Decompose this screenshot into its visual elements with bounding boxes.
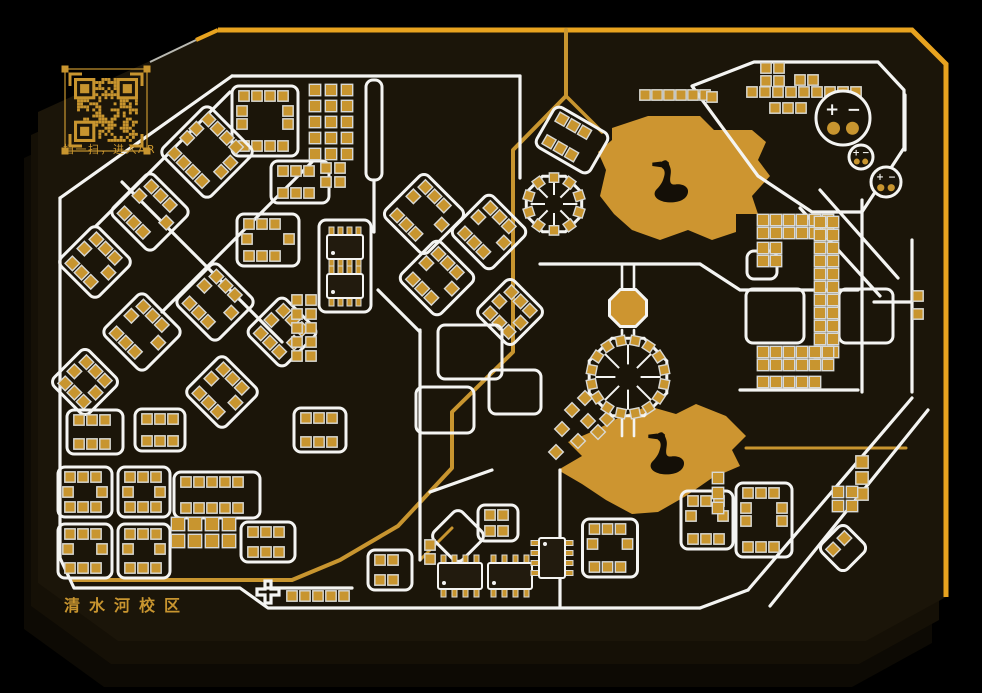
pad-array <box>712 472 725 515</box>
ic-body <box>488 563 532 589</box>
plaza-pad <box>629 334 642 347</box>
battery-pad <box>862 159 868 165</box>
battery-minus-mark: − <box>888 172 896 183</box>
battery-minus-mark: − <box>847 99 861 119</box>
battery-pad <box>846 122 859 135</box>
plaza-pad <box>614 334 627 347</box>
battery-plus-mark: + <box>852 149 860 159</box>
pcb-board <box>38 30 946 641</box>
plaza-pad <box>585 378 598 391</box>
octagon-pad <box>610 290 647 327</box>
battery-footprint: +− <box>871 167 901 197</box>
pin1-dot <box>442 581 446 585</box>
pin1-dot <box>543 542 547 546</box>
ic-body <box>327 274 363 298</box>
battery-outline <box>816 91 870 145</box>
pcb-campus-map-photo: +−+−+− 扫一扫，进入AR 清水河校区 <box>0 0 982 693</box>
battery-pad <box>888 184 895 191</box>
ic-body <box>438 563 482 589</box>
qr-frame-corner <box>144 66 151 73</box>
ic-body <box>327 235 363 259</box>
pad-array <box>309 84 354 161</box>
battery-plus-mark: + <box>876 172 884 183</box>
pad-array <box>706 91 718 103</box>
battery-plus-mark: + <box>825 99 839 119</box>
campus-name-label: 清水河校区 <box>64 592 189 616</box>
pin1-dot <box>492 581 496 585</box>
pad-array <box>757 376 822 389</box>
battery-pad <box>877 184 884 191</box>
pcb-map-svg: +−+−+− <box>0 0 982 693</box>
plaza-pad <box>585 363 598 376</box>
plaza-pad <box>549 225 560 236</box>
battery-minus-mark: − <box>862 149 870 159</box>
battery-pad <box>854 159 860 165</box>
plaza-pad <box>629 407 642 420</box>
plaza-pad <box>658 363 671 376</box>
pin1-dot <box>331 251 335 255</box>
pad-array <box>769 102 807 114</box>
qr-frame-corner <box>62 66 69 73</box>
qr-caption: 扫一扫，进入AR <box>63 141 156 157</box>
pin1-dot <box>331 290 335 294</box>
plaza-pad <box>658 378 671 391</box>
battery-footprint: +− <box>849 145 873 169</box>
pad-array <box>286 590 350 602</box>
battery-footprint: +− <box>816 91 870 145</box>
plaza-pad <box>614 407 627 420</box>
battery-pad <box>827 122 840 135</box>
plaza-pad <box>549 172 560 183</box>
ic-body <box>539 538 565 578</box>
